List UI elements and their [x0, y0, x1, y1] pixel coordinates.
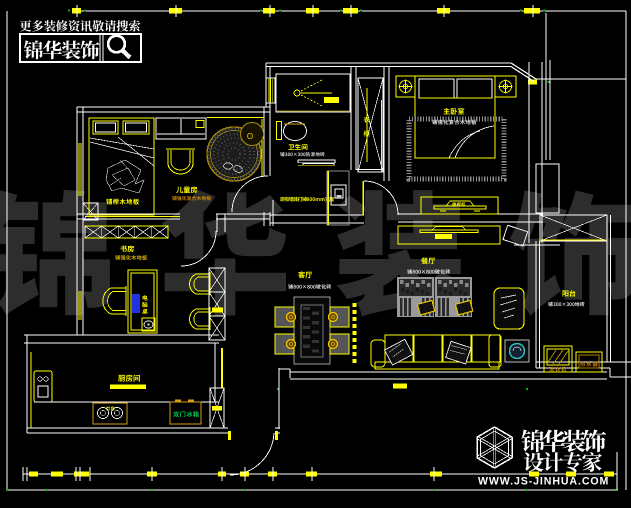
svg-text:WWW.JS-JINHUA.COM: WWW.JS-JINHUA.COM [478, 476, 609, 488]
